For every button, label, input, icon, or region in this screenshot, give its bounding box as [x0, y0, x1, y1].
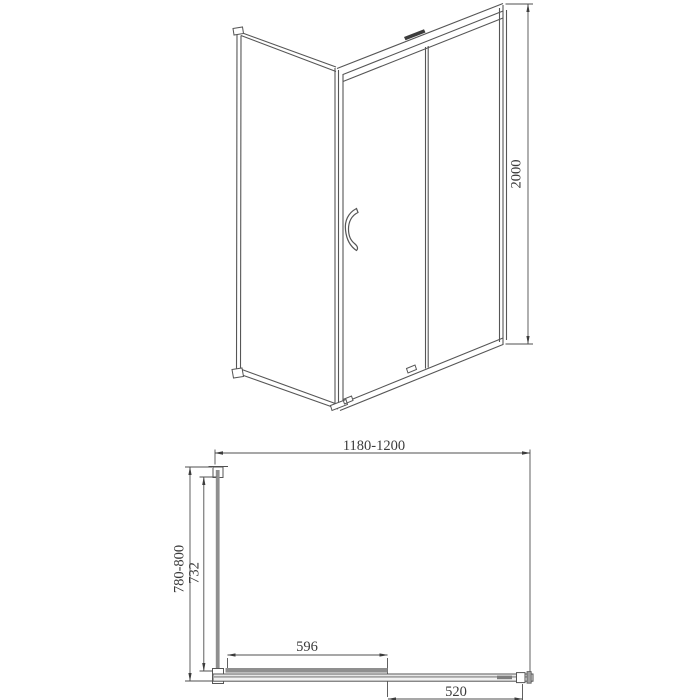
top-rail: [337, 4, 503, 82]
panel-divider: [426, 46, 429, 369]
dim-depth-label: 780-800: [172, 545, 188, 593]
dim-width-label: 1180-1200: [343, 438, 405, 454]
door-track-plan: [213, 668, 533, 683]
width-dimension: 1180-1200: [215, 438, 531, 673]
drawing-canvas: 2000 1180-1200 780-800 732: [0, 0, 700, 700]
plan-view: 1180-1200 780-800 732 596: [172, 438, 534, 700]
door-frame-verticals: [335, 5, 507, 409]
technical-drawing: 2000 1180-1200 780-800 732: [0, 0, 700, 700]
sliding-door-front: [331, 4, 507, 411]
side-panel-outline: [237, 31, 339, 409]
dim-glass-depth-label: 732: [187, 562, 203, 584]
side-panel-plan: [209, 467, 229, 684]
track-end-insert: [497, 676, 512, 680]
track-end-post: [527, 672, 531, 684]
side-glass-plan: [216, 470, 220, 672]
height-dimension: 2000: [506, 4, 534, 345]
dim-height-label: 2000: [509, 160, 525, 189]
sliding-door-plan: [226, 668, 388, 673]
dim-door-panel-label: 596: [296, 639, 318, 655]
door-handle: [345, 209, 358, 251]
isometric-view: 2000: [232, 4, 533, 411]
glass-depth-dimension: 732: [187, 477, 217, 672]
bottom-rail: [340, 338, 503, 411]
dim-fixed-panel-label: 520: [445, 684, 467, 700]
side-panel: [232, 27, 338, 409]
width-dimension-lines: [215, 450, 530, 674]
fixed-panel-dimension: 520: [388, 684, 524, 700]
track-end-bracket: [517, 673, 526, 683]
side-panel-end-caps: [232, 27, 244, 378]
